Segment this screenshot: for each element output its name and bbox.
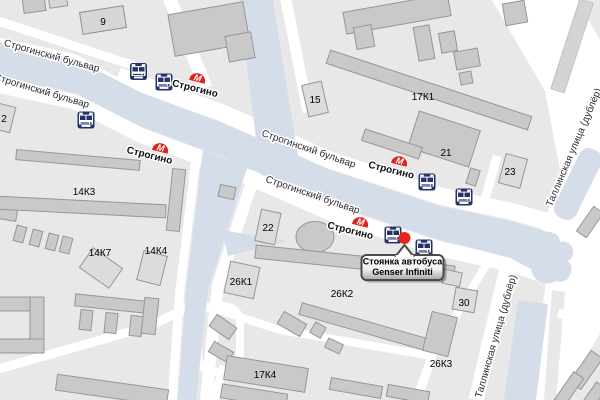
svg-text:26К2: 26К2 [331, 289, 354, 300]
svg-text:14К7: 14К7 [89, 248, 112, 259]
svg-text:21: 21 [440, 148, 452, 159]
svg-text:14К3: 14К3 [73, 187, 96, 198]
svg-text:2: 2 [1, 114, 7, 125]
svg-text:17К1: 17К1 [412, 92, 435, 103]
svg-text:26К3: 26К3 [430, 359, 453, 370]
svg-text:Genser Infiniti: Genser Infiniti [372, 267, 433, 277]
svg-text:26К1: 26К1 [230, 277, 253, 288]
svg-text:14К4: 14К4 [145, 246, 168, 257]
svg-text:30: 30 [458, 298, 470, 309]
svg-text:23: 23 [504, 167, 516, 178]
svg-text:15: 15 [309, 95, 321, 106]
svg-text:Стоянка автобуса: Стоянка автобуса [363, 257, 443, 267]
svg-text:22: 22 [262, 223, 274, 234]
svg-text:17К4: 17К4 [254, 370, 277, 381]
svg-text:9: 9 [100, 17, 106, 28]
